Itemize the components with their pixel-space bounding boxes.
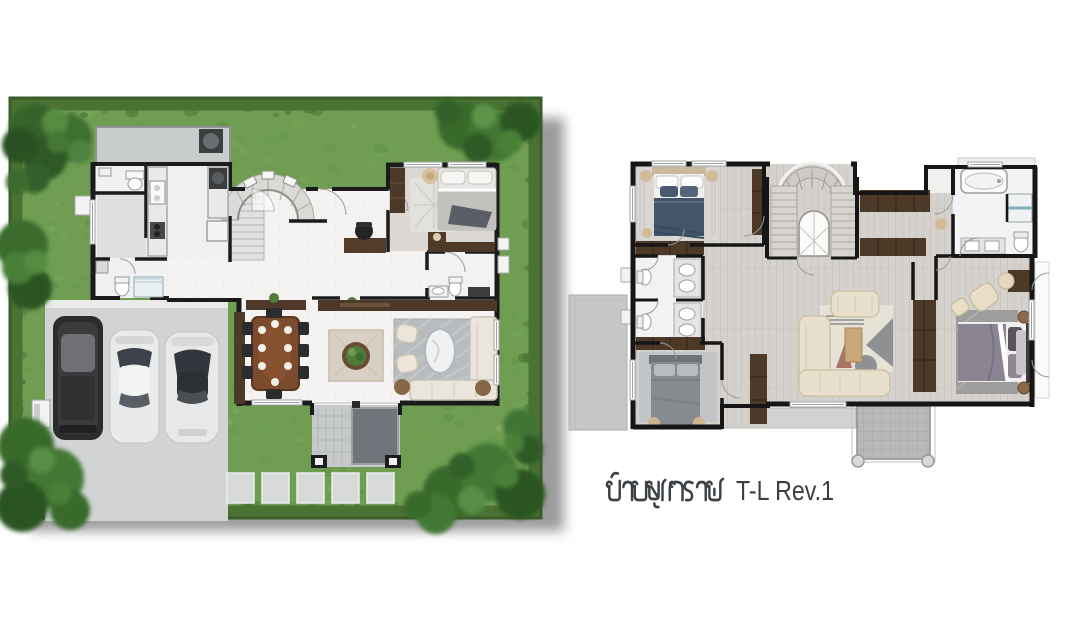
svg-text:T-L Rev.1: T-L Rev.1 [736,475,834,506]
